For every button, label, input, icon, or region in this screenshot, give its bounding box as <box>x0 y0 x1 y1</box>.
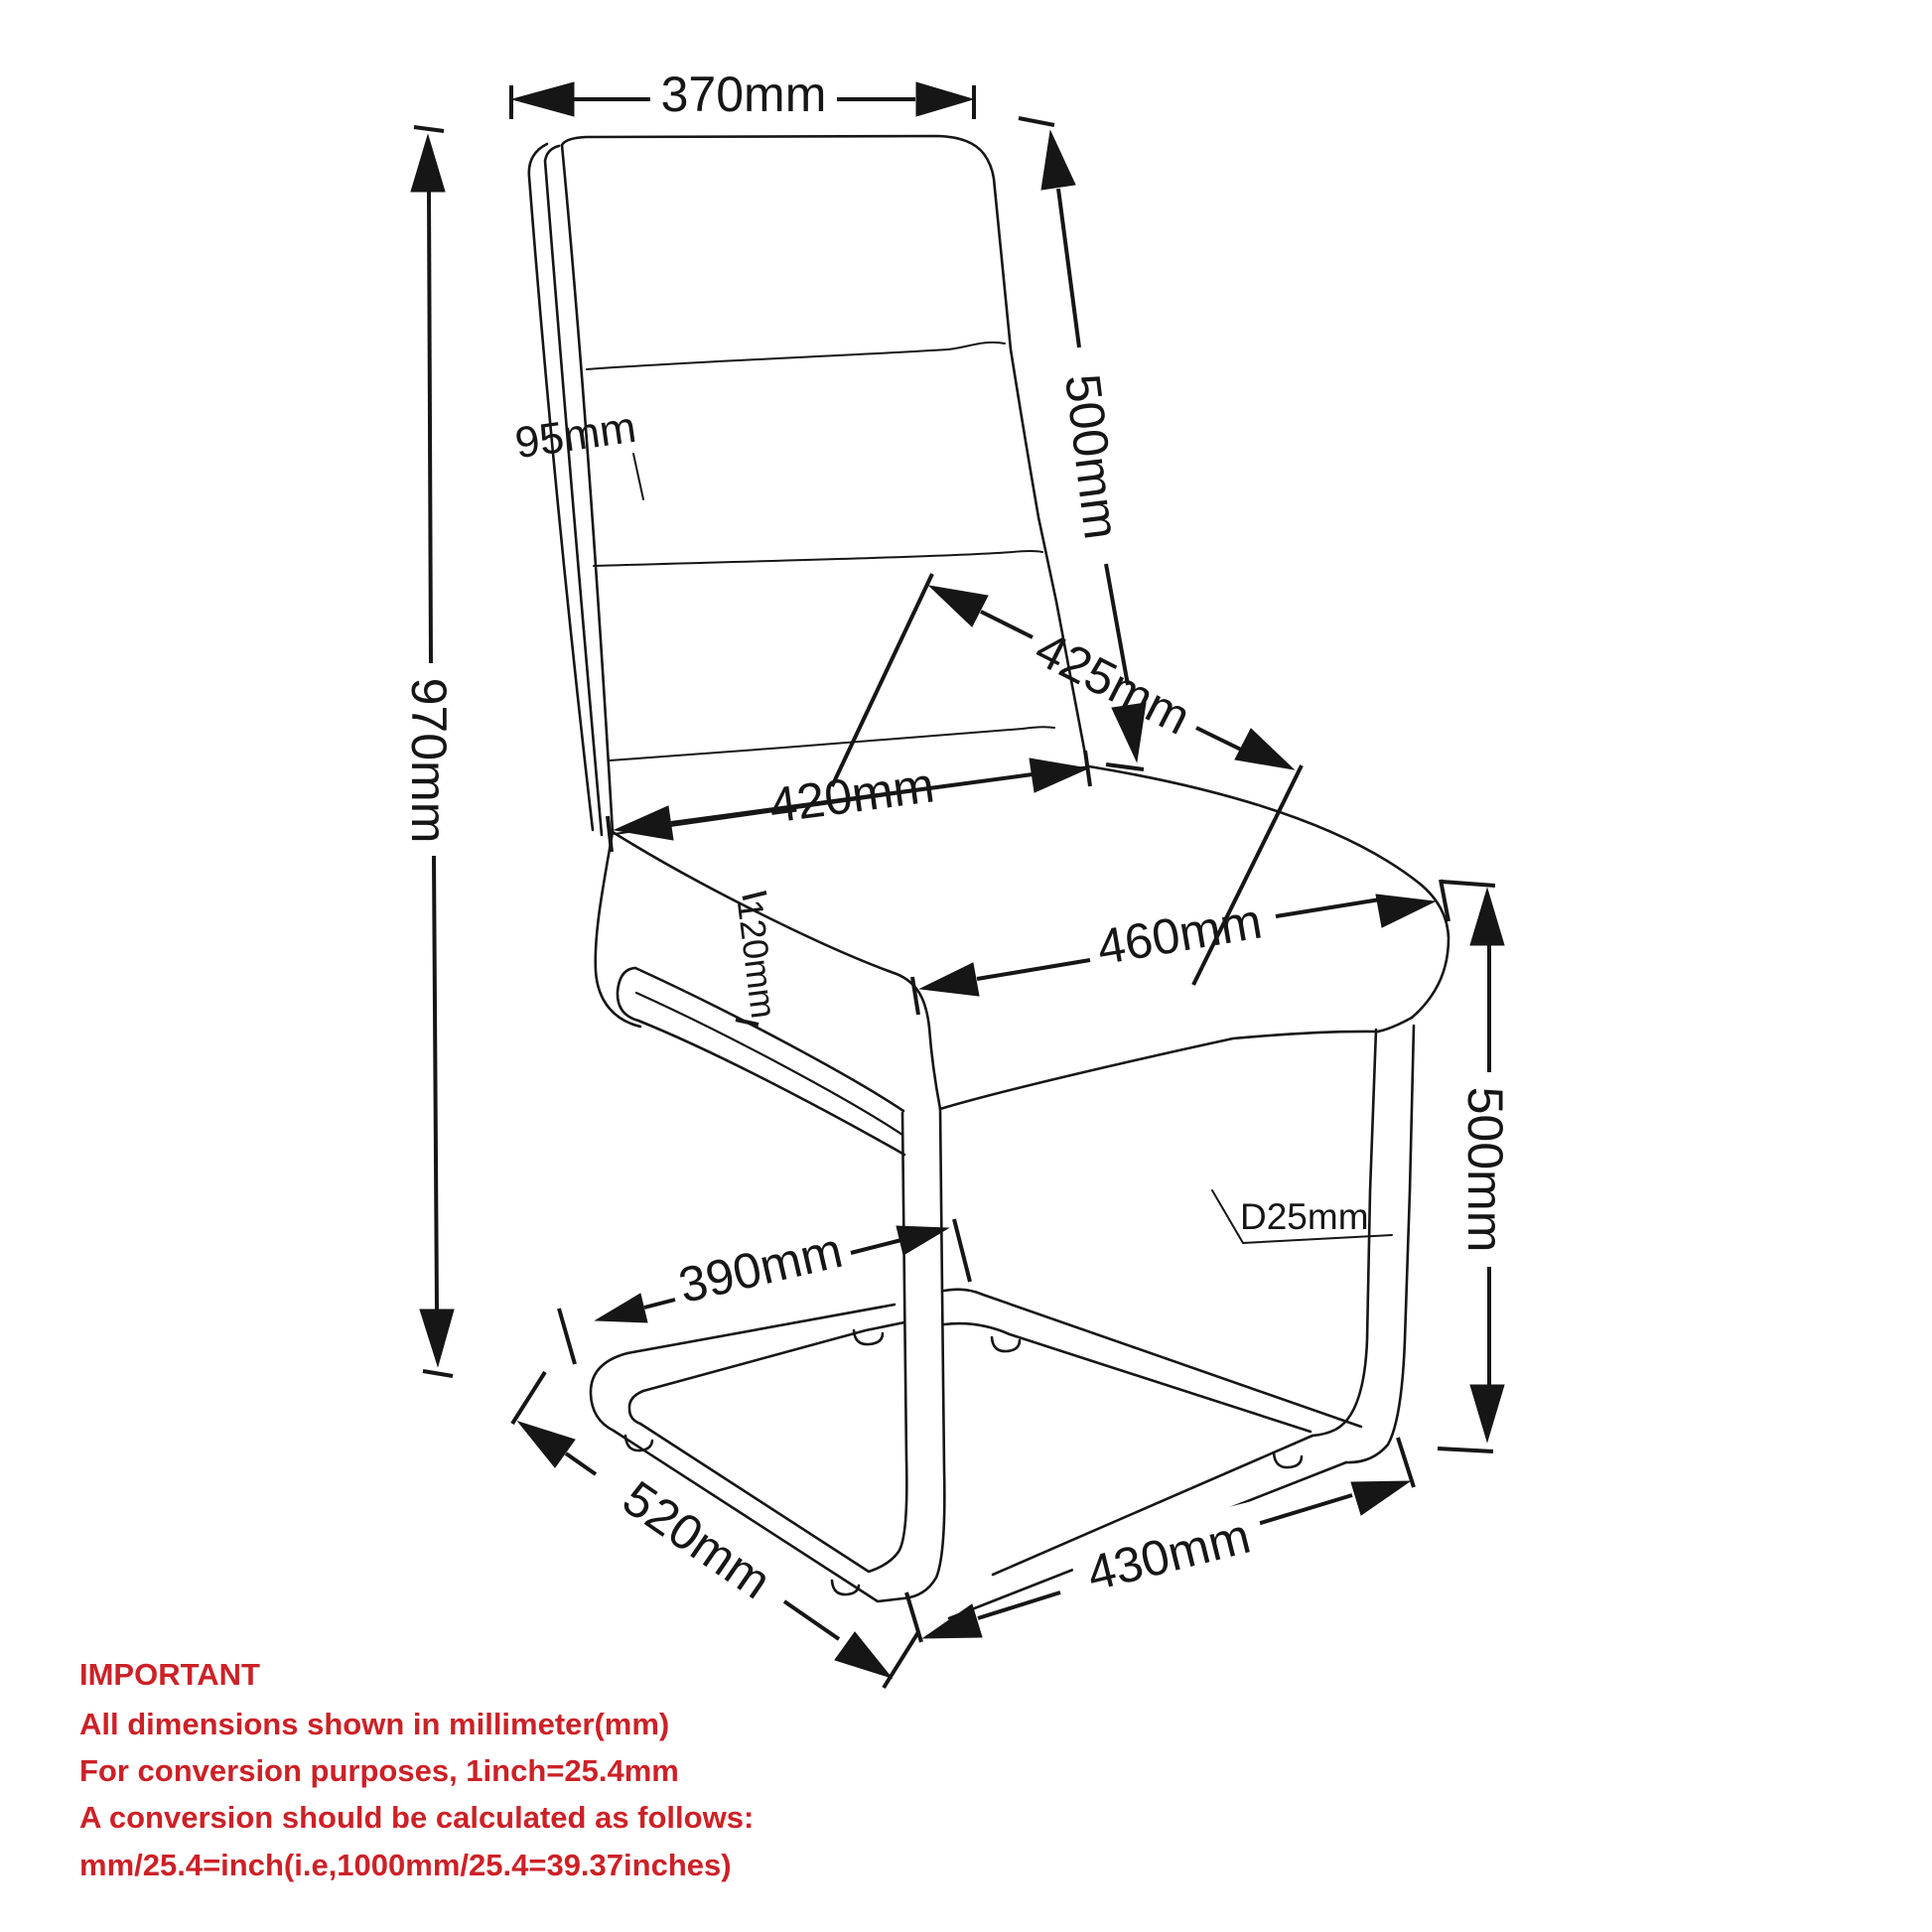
svg-text:520mm: 520mm <box>613 1470 780 1610</box>
svg-text:95mm: 95mm <box>512 403 639 469</box>
svg-text:420mm: 420mm <box>766 757 938 833</box>
svg-text:970mm: 970mm <box>401 678 457 844</box>
svg-text:370mm: 370mm <box>661 67 827 122</box>
svg-text:460mm: 460mm <box>1093 893 1266 975</box>
svg-text:120mm: 120mm <box>730 897 784 1021</box>
svg-text:All dimensions shown in millim: All dimensions shown in millimeter(mm) <box>79 1707 669 1741</box>
svg-text:500mm: 500mm <box>1457 1087 1513 1253</box>
svg-text:IMPORTANT: IMPORTANT <box>79 1657 260 1692</box>
svg-text:For conversion purposes, 1inch: For conversion purposes, 1inch=25.4mm <box>79 1753 679 1788</box>
svg-text:390mm: 390mm <box>673 1222 847 1313</box>
svg-text:A conversion should be calcula: A conversion should be calculated as fol… <box>79 1800 754 1835</box>
svg-text:mm/25.4=inch(i.e,1000mm/25.4=3: mm/25.4=inch(i.e,1000mm/25.4=39.37inches… <box>79 1848 732 1882</box>
svg-text:500mm: 500mm <box>1054 371 1130 542</box>
svg-text:430mm: 430mm <box>1081 1508 1255 1602</box>
svg-text:D25mm: D25mm <box>1240 1196 1369 1237</box>
